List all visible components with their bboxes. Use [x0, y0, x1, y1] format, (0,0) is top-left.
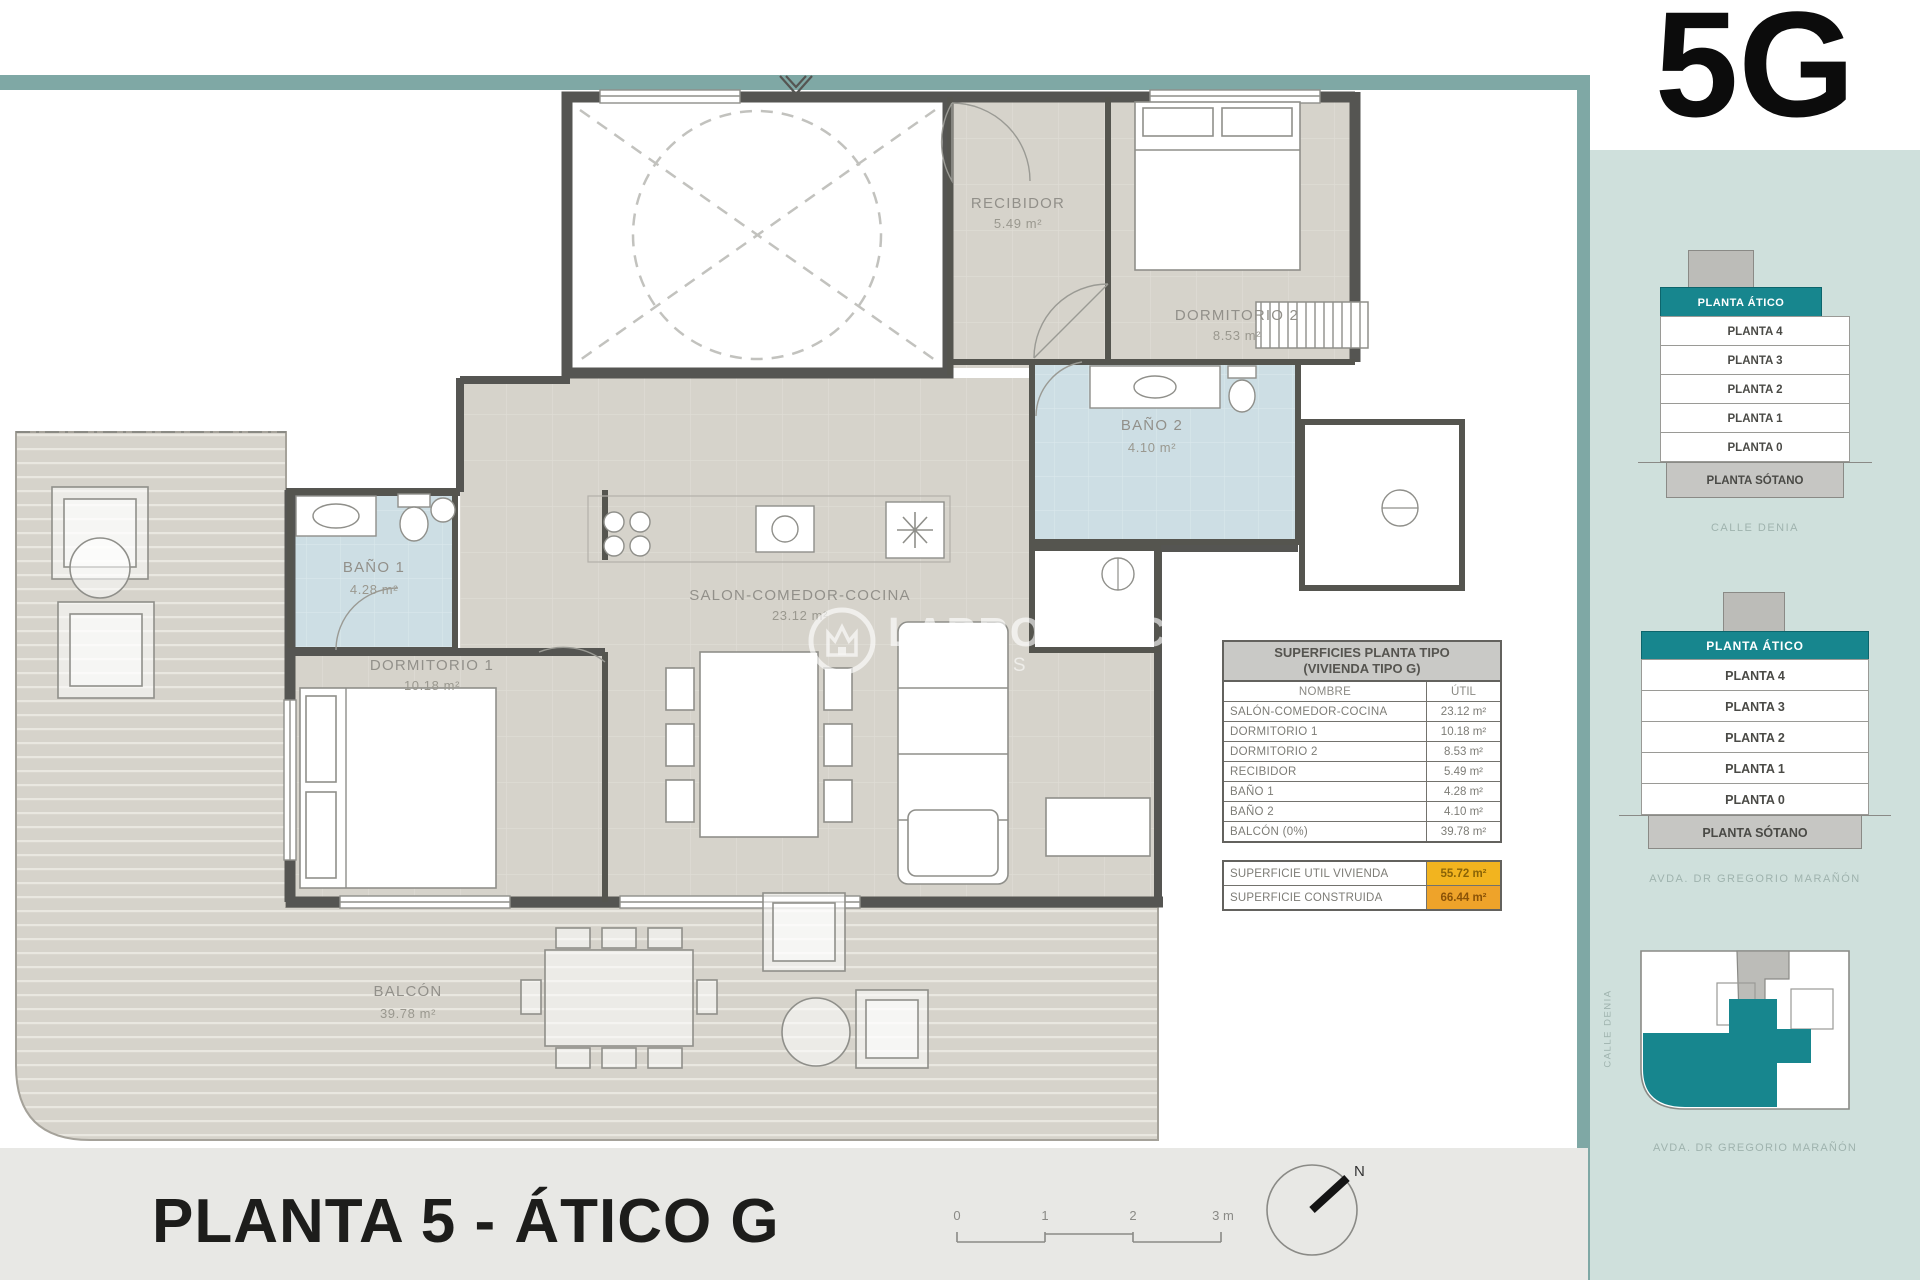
- level-row: PLANTA 4: [1660, 316, 1850, 346]
- areas-table-title-line1: SUPERFICIES PLANTA TIPO: [1224, 645, 1500, 661]
- ground-line: [1619, 815, 1891, 816]
- sofa: [898, 622, 1008, 884]
- area-dormitorio1: 10.18 m²: [404, 678, 460, 693]
- svg-text:0: 0: [953, 1208, 960, 1223]
- level-atico-highlight: PLANTA ÁTICO: [1641, 631, 1869, 660]
- svg-text:3 m: 3 m: [1212, 1208, 1234, 1223]
- svg-text:N: N: [1354, 1163, 1365, 1180]
- areas-table-column-headers: NOMBRE ÚTIL: [1224, 682, 1500, 702]
- area-salon: 23.12 m²: [772, 608, 828, 623]
- stack2-street-caption: AVDA. DR GREGORIO MARAÑÓN: [1641, 873, 1869, 885]
- areas-table-title-line2: (VIVIENDA TIPO G): [1224, 661, 1500, 677]
- stack1-street-caption: CALLE DENIA: [1660, 522, 1850, 534]
- level-atico-highlight: PLANTA ÁTICO: [1660, 287, 1822, 317]
- level-row: PLANTA 2: [1660, 374, 1850, 404]
- floor-plan-drawing: RECIBIDOR 5.49 m² DORMITORIO 2 8.53 m² B…: [0, 0, 1588, 1148]
- site-plan: CALLE DENIA AVDA. DR GREGORIO MARAÑÓN: [1625, 937, 1885, 1154]
- areas-table: SUPERFICIES PLANTA TIPO (VIVIENDA TIPO G…: [1222, 640, 1502, 843]
- floorplan-sheet: RECIBIDOR 5.49 m² DORMITORIO 2 8.53 m² B…: [0, 0, 1920, 1280]
- dining-table: [666, 652, 852, 837]
- construida-total-value: 66.44 m²: [1426, 886, 1500, 909]
- label-bano1: BAÑO 1: [343, 559, 405, 576]
- area-balcon: 39.78 m²: [380, 1006, 436, 1021]
- building-stack-diagram-1: PLANTA ÁTICO PLANTA 4 PLANTA 3 PLANTA 2 …: [1660, 250, 1850, 534]
- svg-text:2: 2: [1129, 1208, 1136, 1223]
- entry-door-marker: [780, 76, 812, 94]
- label-dormitorio2: DORMITORIO 2: [1175, 307, 1299, 324]
- level-row: PLANTA 3: [1660, 345, 1850, 375]
- siteplan-left-street-label: CALLE DENIA: [1603, 989, 1614, 1067]
- page-title: PLANTA 5 - ÁTICO G: [152, 1186, 780, 1257]
- unit-code: 5G: [1590, 0, 1920, 140]
- roof-box: [1688, 250, 1754, 288]
- col-nombre: NOMBRE: [1224, 682, 1426, 701]
- sidebar-panel: PLANTA ÁTICO PLANTA 4 PLANTA 3 PLANTA 2 …: [1590, 150, 1920, 1280]
- sidebar: 5G PLANTA ÁTICO PLANTA 4 PLANTA 3 PLANTA…: [1590, 0, 1920, 1280]
- area-bano2: 4.10 m²: [1128, 440, 1176, 455]
- level-row: PLANTA 4: [1641, 659, 1869, 691]
- label-recibidor: RECIBIDOR: [971, 195, 1065, 212]
- bed-dormitorio1: [300, 688, 496, 888]
- title-strip: PLANTA 5 - ÁTICO G 0 1 2 3 m N: [0, 1148, 1588, 1280]
- summary-row-construida: SUPERFICIE CONSTRUIDA 66.44 m²: [1224, 886, 1500, 909]
- area-recibidor: 5.49 m²: [994, 216, 1042, 231]
- level-row: PLANTA 3: [1641, 690, 1869, 722]
- label-balcon: BALCÓN: [374, 983, 443, 1000]
- level-row: PLANTA 2: [1641, 721, 1869, 753]
- table-row: RECIBIDOR5.49 m²: [1224, 762, 1500, 782]
- siteplan-bottom-street-label: AVDA. DR GREGORIO MARAÑÓN: [1625, 1142, 1885, 1154]
- table-row: BALCÓN (0%)39.78 m²: [1224, 822, 1500, 841]
- level-sotano: PLANTA SÓTANO: [1648, 815, 1862, 849]
- svg-text:1: 1: [1041, 1208, 1048, 1223]
- level-sotano: PLANTA SÓTANO: [1666, 462, 1844, 498]
- desk: [1046, 798, 1150, 856]
- table-row: SALÓN-COMEDOR-COCINA23.12 m²: [1224, 702, 1500, 722]
- area-bano1: 4.28 m²: [350, 582, 398, 597]
- scale-bar: 0 1 2 3 m: [945, 1198, 1245, 1258]
- label-salon: SALON-COMEDOR-COCINA: [689, 587, 911, 604]
- roof-box: [1723, 592, 1785, 632]
- table-row: BAÑO 24.10 m²: [1224, 802, 1500, 822]
- table-row: DORMITORIO 28.53 m²: [1224, 742, 1500, 762]
- level-row: PLANTA 1: [1641, 752, 1869, 784]
- ground-line: [1638, 462, 1872, 463]
- site-plan-drawing: [1625, 937, 1865, 1127]
- level-row: PLANTA 0: [1641, 783, 1869, 815]
- label-bano2: BAÑO 2: [1121, 417, 1183, 434]
- bed-dormitorio2: [1135, 102, 1300, 270]
- areas-table-title: SUPERFICIES PLANTA TIPO (VIVIENDA TIPO G…: [1224, 642, 1500, 682]
- util-total-value: 55.72 m²: [1426, 862, 1500, 885]
- label-dormitorio1: DORMITORIO 1: [370, 657, 494, 674]
- stair-core: [567, 97, 948, 373]
- table-row: DORMITORIO 110.18 m²: [1224, 722, 1500, 742]
- area-dormitorio2: 8.53 m²: [1213, 328, 1261, 343]
- building-stack-diagram-2: PLANTA ÁTICO PLANTA 4 PLANTA 3 PLANTA 2 …: [1641, 592, 1869, 885]
- summary-table: SUPERFICIE UTIL VIVIENDA 55.72 m² SUPERF…: [1222, 860, 1502, 911]
- level-row: PLANTA 1: [1660, 403, 1850, 433]
- col-util: ÚTIL: [1426, 682, 1500, 701]
- table-row: BAÑO 14.28 m²: [1224, 782, 1500, 802]
- north-compass-icon: N: [1258, 1148, 1378, 1268]
- summary-row-util: SUPERFICIE UTIL VIVIENDA 55.72 m²: [1224, 862, 1500, 886]
- level-row: PLANTA 0: [1660, 432, 1850, 462]
